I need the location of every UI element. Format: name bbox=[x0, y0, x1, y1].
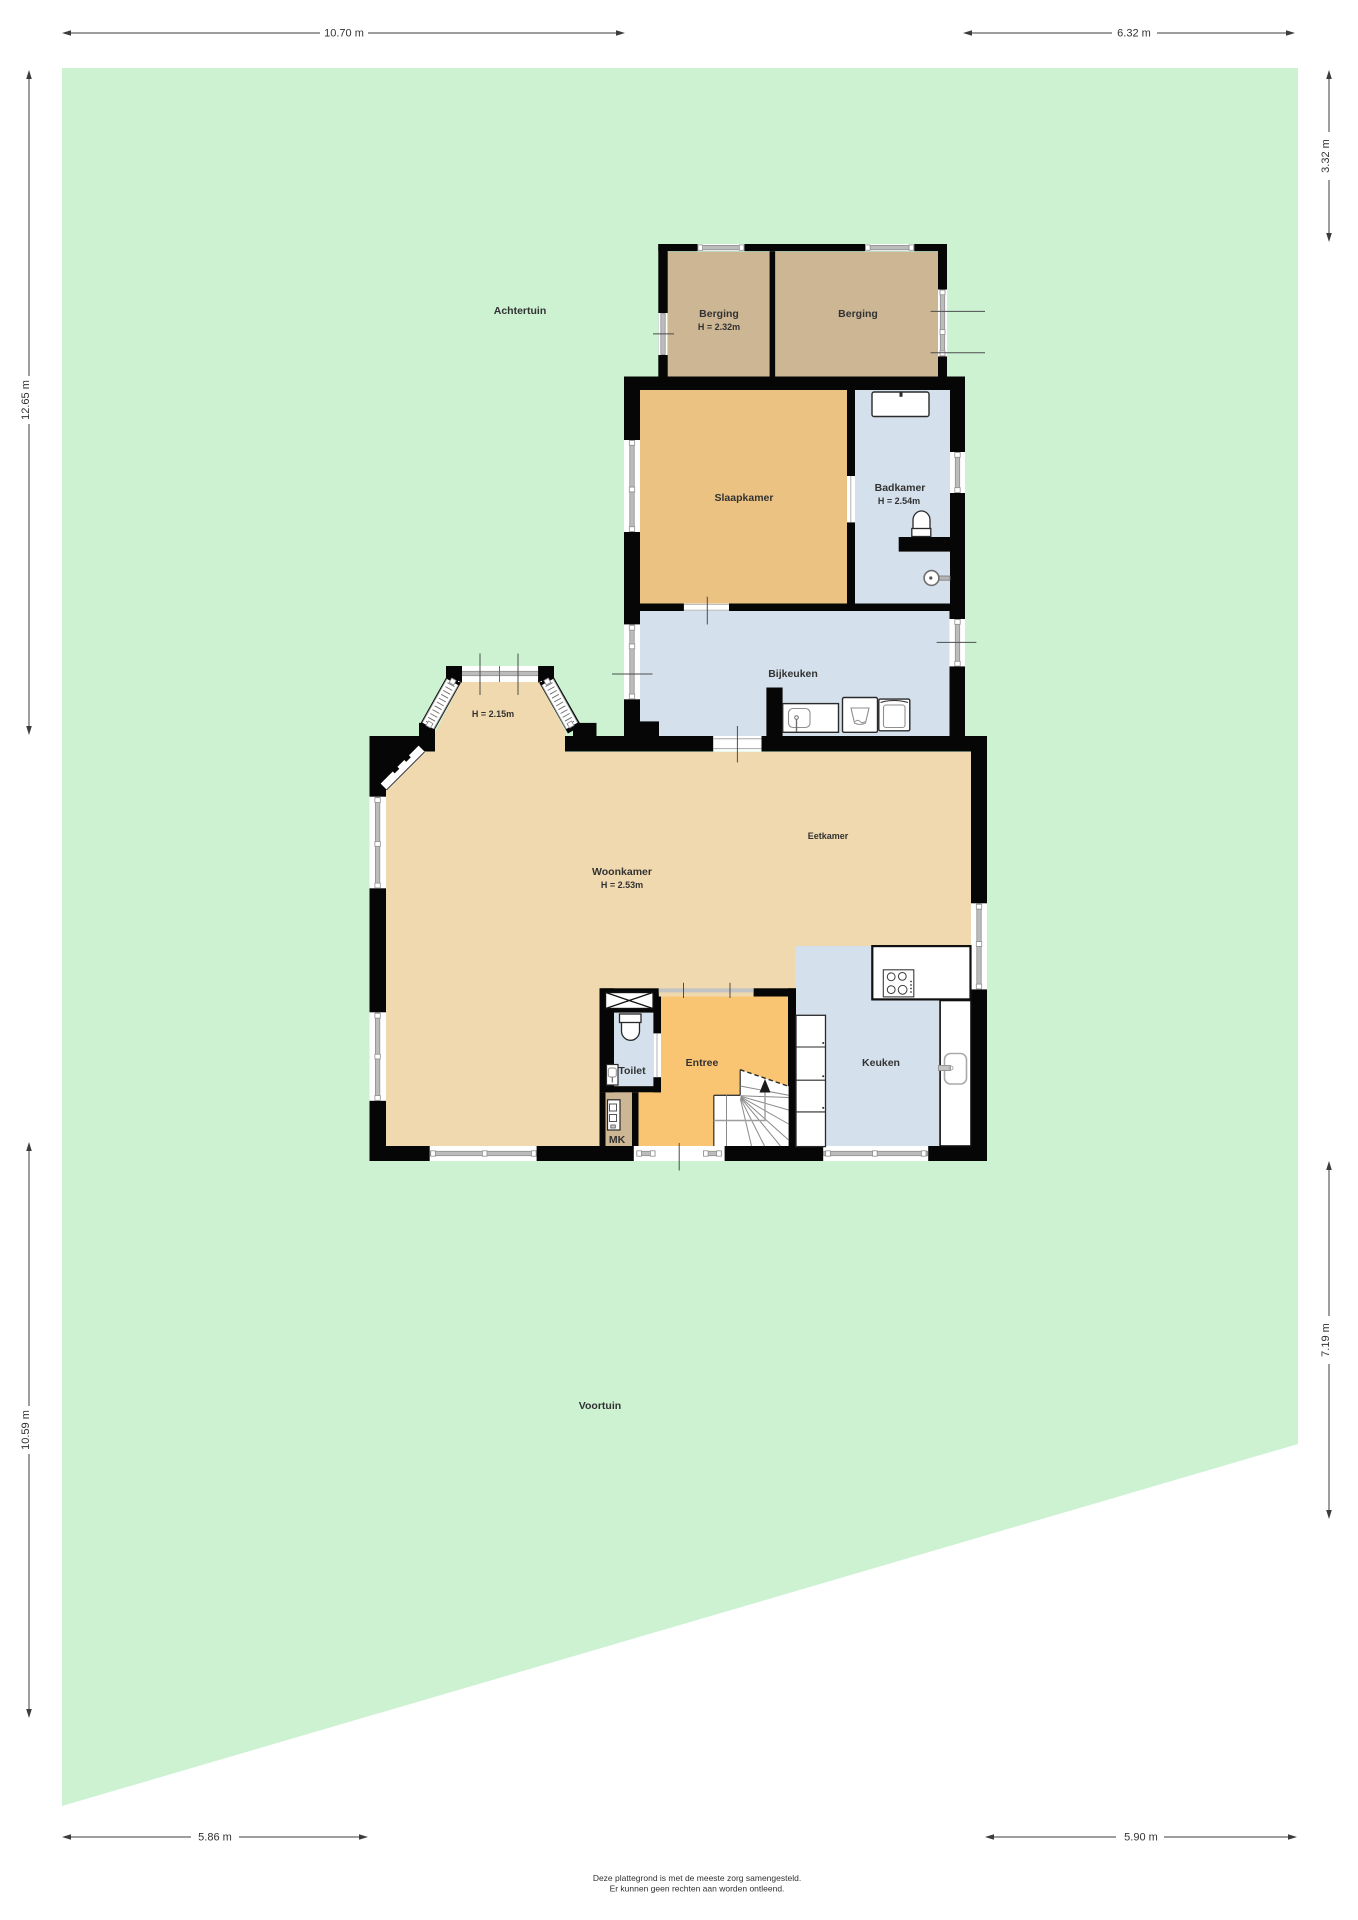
svg-text:Er kunnen geen rechten aan wor: Er kunnen geen rechten aan worden ontlee… bbox=[610, 1884, 785, 1894]
svg-text:Toilet: Toilet bbox=[618, 1065, 646, 1077]
svg-text:Deze plattegrond is met de mee: Deze plattegrond is met de meeste zorg s… bbox=[593, 1873, 801, 1883]
svg-text:H = 2.15m: H = 2.15m bbox=[472, 709, 514, 719]
svg-text:Voortuin: Voortuin bbox=[579, 1400, 621, 1412]
svg-text:Entree: Entree bbox=[686, 1057, 719, 1069]
svg-text:10.59 m: 10.59 m bbox=[20, 1410, 32, 1450]
svg-text:H = 2.54m: H = 2.54m bbox=[878, 496, 920, 506]
svg-text:12.65 m: 12.65 m bbox=[20, 380, 32, 420]
svg-text:H = 2.32m: H = 2.32m bbox=[698, 322, 740, 332]
svg-text:Badkamer: Badkamer bbox=[875, 482, 926, 494]
svg-text:5.86 m: 5.86 m bbox=[198, 1832, 232, 1844]
svg-text:MK: MK bbox=[609, 1134, 626, 1146]
svg-text:H = 2.53m: H = 2.53m bbox=[601, 880, 643, 890]
svg-text:7.19 m: 7.19 m bbox=[1320, 1323, 1332, 1357]
svg-text:Eetkamer: Eetkamer bbox=[808, 831, 849, 841]
svg-text:Berging: Berging bbox=[699, 308, 739, 320]
svg-text:5.90 m: 5.90 m bbox=[1124, 1832, 1158, 1844]
svg-text:Achtertuin: Achtertuin bbox=[494, 305, 547, 317]
svg-text:10.70 m: 10.70 m bbox=[324, 28, 364, 40]
svg-text:Keuken: Keuken bbox=[862, 1057, 900, 1069]
svg-text:Woonkamer: Woonkamer bbox=[592, 866, 652, 878]
svg-text:3.32 m: 3.32 m bbox=[1320, 139, 1332, 173]
svg-text:6.32 m: 6.32 m bbox=[1117, 28, 1151, 40]
svg-text:Bijkeuken: Bijkeuken bbox=[768, 668, 818, 680]
svg-text:Slaapkamer: Slaapkamer bbox=[715, 492, 774, 504]
svg-text:Berging: Berging bbox=[838, 308, 878, 320]
